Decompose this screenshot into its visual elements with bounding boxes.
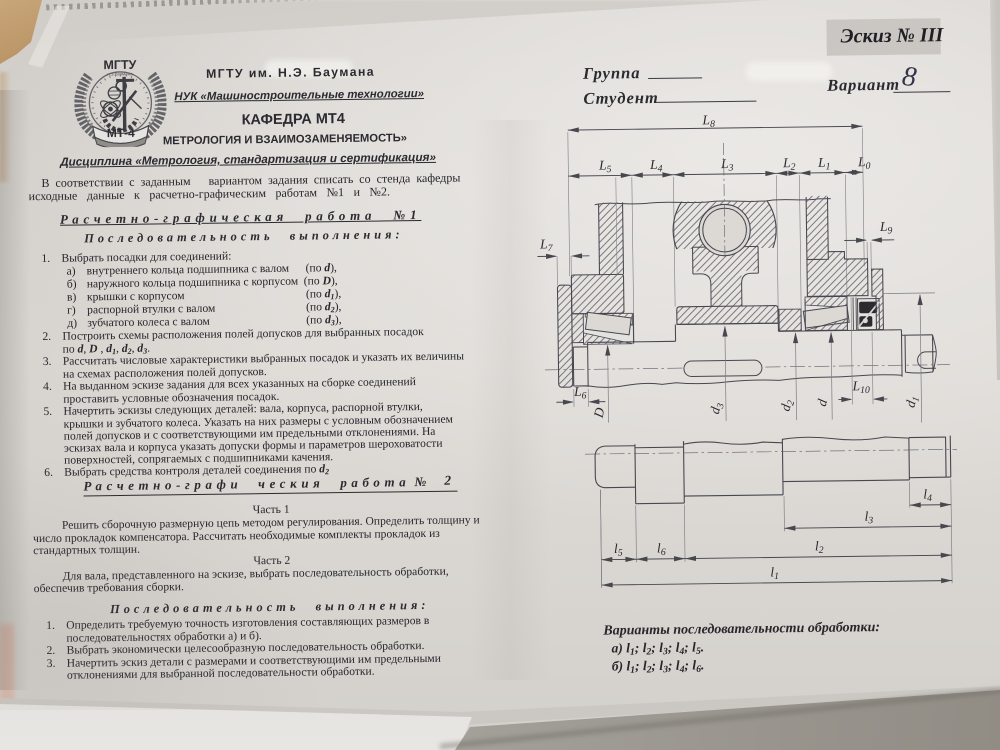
svg-text:L2: L2 [782,155,796,173]
svg-text:d2: d2 [777,398,797,413]
svg-text:l4: l4 [923,486,932,504]
svg-text:d: d [814,397,830,407]
svg-text:L6: L6 [573,384,587,402]
svg-text:l2: l2 [815,538,824,556]
svg-text:б) l1; l2; l3; l4; l6.: б) l1; l2; l3; l4; l6. [612,657,705,676]
svg-text:L8: L8 [701,112,715,130]
svg-text:l1: l1 [770,564,779,582]
svg-text:L5: L5 [598,158,612,176]
svg-text:Варианты последовательности об: Варианты последовательности обработки: [602,620,880,639]
svg-text:d1: d1 [902,394,922,409]
svg-text:D: D [590,406,607,420]
svg-text:l5: l5 [614,541,623,559]
svg-text:а) l1; l2; l3; l4; l5.: а) l1; l2; l3; l4; l5. [611,639,704,658]
svg-text:L1: L1 [817,155,831,173]
svg-text:l3: l3 [864,509,873,527]
svg-text:l6: l6 [657,540,666,558]
svg-text:L4: L4 [649,157,663,175]
svg-text:d3: d3 [707,401,727,416]
svg-text:L9: L9 [879,219,893,237]
svg-text:L0: L0 [857,154,871,172]
svg-text:L10: L10 [851,378,870,396]
svg-text:L3: L3 [720,156,734,174]
